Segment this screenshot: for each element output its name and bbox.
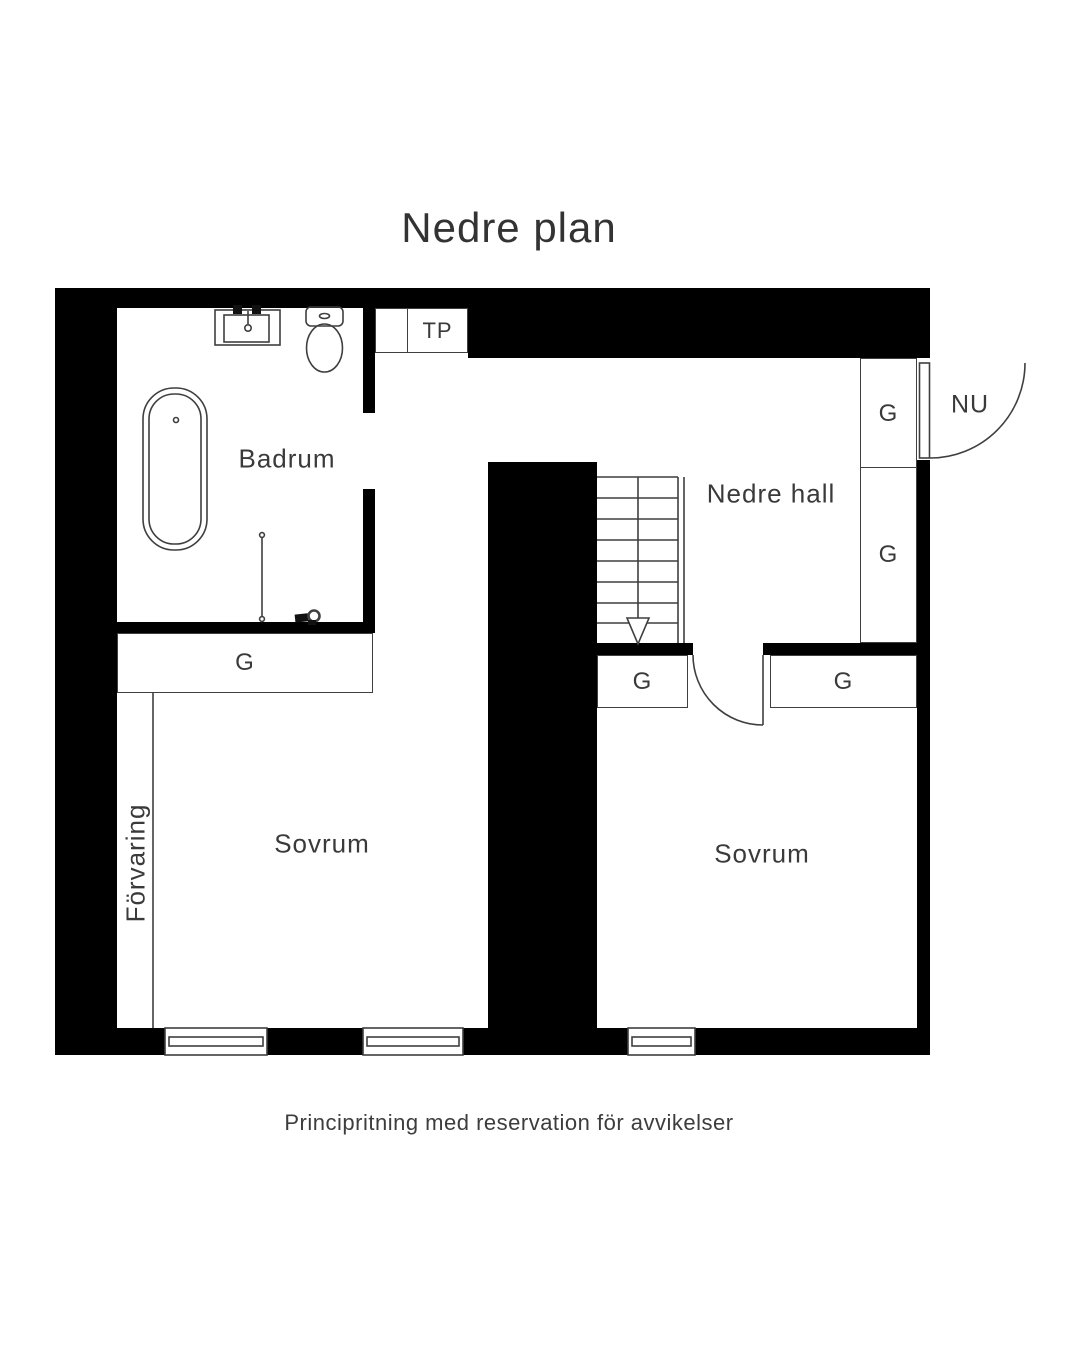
room-label-bathroom: Badrum bbox=[238, 444, 335, 475]
bedroom-door bbox=[693, 655, 763, 725]
stairs bbox=[597, 477, 684, 644]
room-label-bedroom-right: Sovrum bbox=[714, 839, 810, 870]
plan-linework bbox=[0, 0, 1080, 1350]
sink bbox=[215, 305, 280, 345]
toilet bbox=[306, 307, 343, 372]
room-label-hall: Nedre hall bbox=[707, 479, 836, 510]
entrance-door-label: NU bbox=[951, 391, 989, 420]
bedroom-door-swing-arc bbox=[693, 655, 763, 725]
bathtub bbox=[143, 388, 207, 550]
window-bedroom-left-a bbox=[165, 1028, 267, 1055]
room-label-bedroom-left: Sovrum bbox=[274, 829, 370, 860]
shower-line bbox=[260, 533, 265, 622]
floor-plan-page: TP G G G G G bbox=[0, 0, 1080, 1350]
plan-caption: Principritning med reservation för avvik… bbox=[284, 1110, 733, 1136]
stairs-down-arrow bbox=[627, 618, 649, 644]
window-bedroom-left-b bbox=[363, 1028, 463, 1055]
window-bedroom-right bbox=[628, 1028, 695, 1055]
plan-title: Nedre plan bbox=[401, 204, 616, 252]
floor-drain-fixture bbox=[295, 611, 320, 626]
room-label-storage: Förvaring bbox=[121, 804, 152, 923]
entrance-door-leaf bbox=[920, 363, 930, 458]
